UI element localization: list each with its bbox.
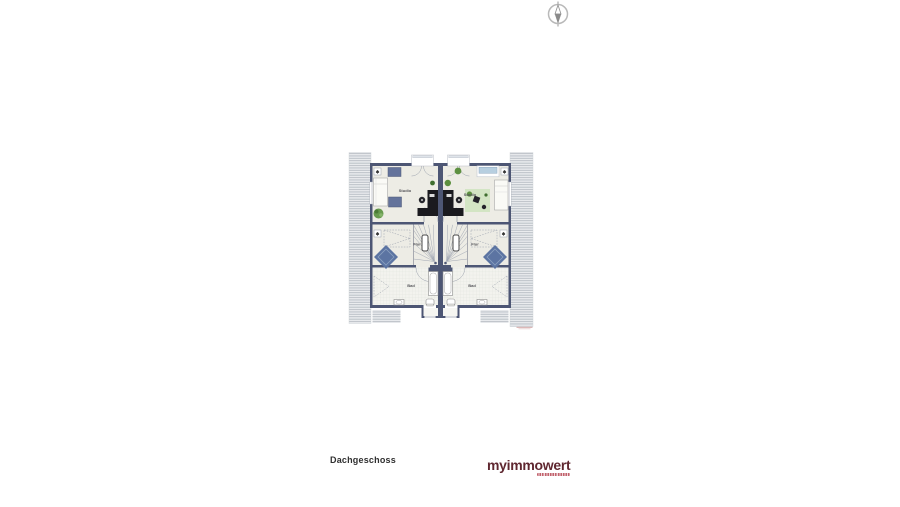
floor-label: Dachgeschoss [330, 455, 396, 465]
plan-watermark [517, 327, 533, 329]
room-label-flur-right: Flur [471, 242, 479, 247]
floor-plan: ✱ ✱ [348, 150, 535, 332]
page: ✱ ✱ [0, 0, 900, 507]
room-label-studio-left: Studio [399, 188, 412, 193]
room-label-bad-right: Bad [468, 283, 476, 288]
room-label-studio-right: Studio [464, 192, 477, 197]
room-label-bad-left: Bad [407, 283, 415, 288]
roof-hatch-left [349, 153, 371, 324]
logo-text: myimmowert [487, 457, 570, 473]
room-label-flur-left: Flur [413, 242, 421, 247]
north-arrow-icon [546, 1, 570, 27]
logo-tagline-bar [537, 473, 570, 476]
roof-hatch-right [510, 153, 533, 327]
